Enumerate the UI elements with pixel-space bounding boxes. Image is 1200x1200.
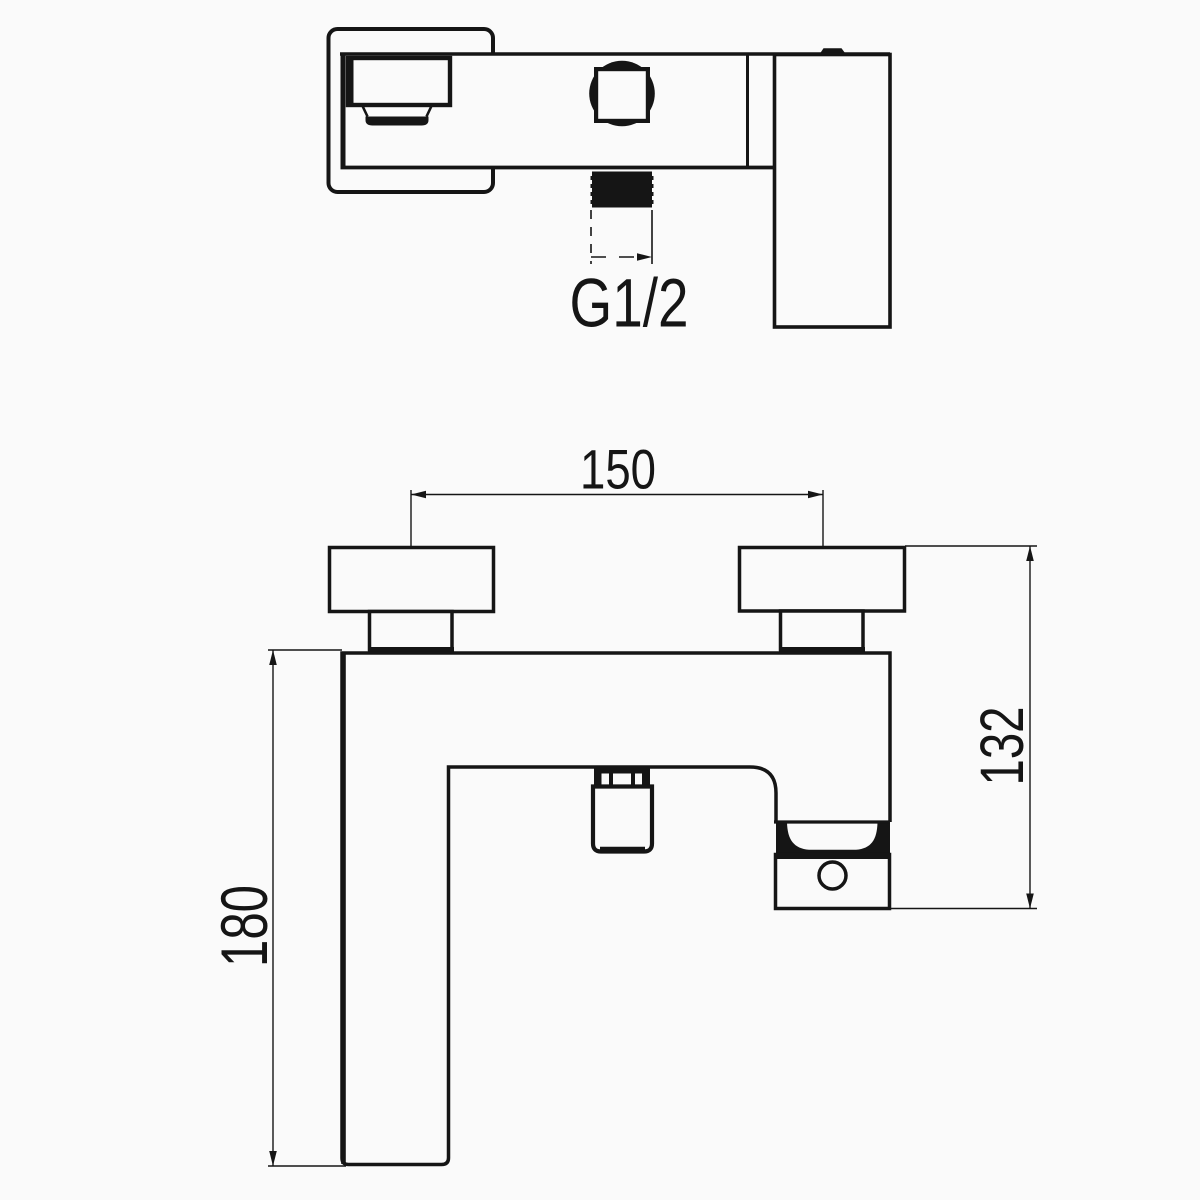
svg-text:180: 180 — [207, 885, 281, 967]
svg-text:G1/2: G1/2 — [570, 265, 689, 342]
svg-text:150: 150 — [580, 439, 656, 501]
svg-text:132: 132 — [968, 707, 1036, 786]
